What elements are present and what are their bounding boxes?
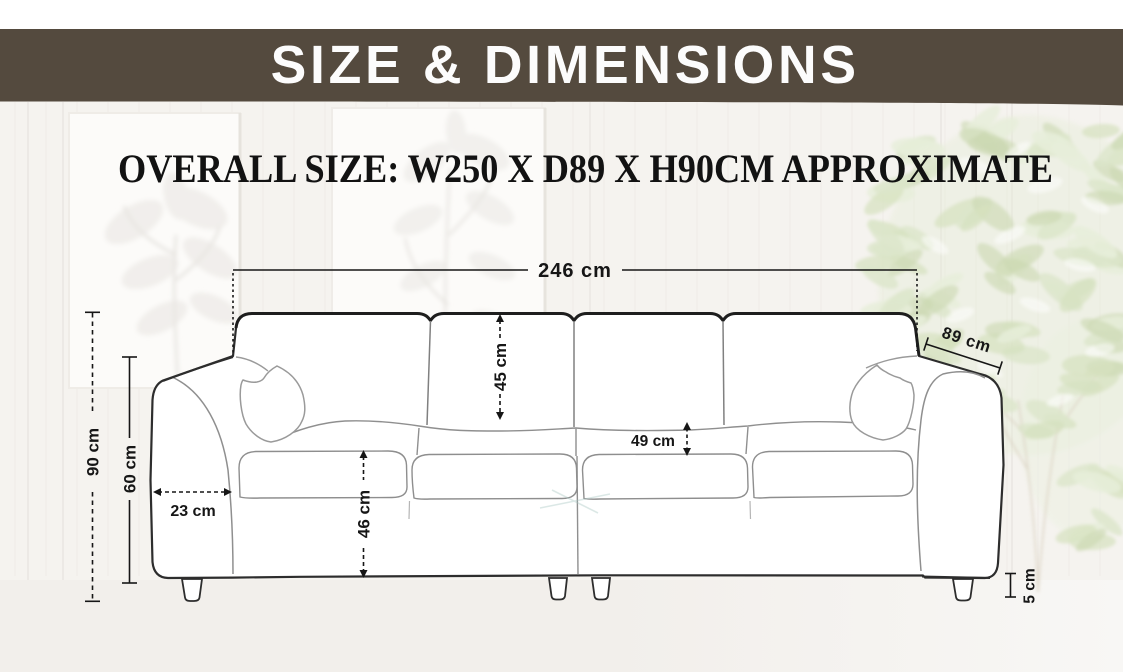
svg-text:45 cm: 45 cm <box>491 343 510 391</box>
svg-text:23 cm: 23 cm <box>170 503 215 520</box>
svg-text:90 cm: 90 cm <box>84 428 103 476</box>
svg-text:5 cm: 5 cm <box>1022 568 1039 603</box>
svg-text:60 cm: 60 cm <box>121 445 140 493</box>
svg-text:49 cm: 49 cm <box>631 433 675 450</box>
svg-text:46 cm: 46 cm <box>355 490 374 538</box>
svg-text:246 cm: 246 cm <box>538 260 612 282</box>
